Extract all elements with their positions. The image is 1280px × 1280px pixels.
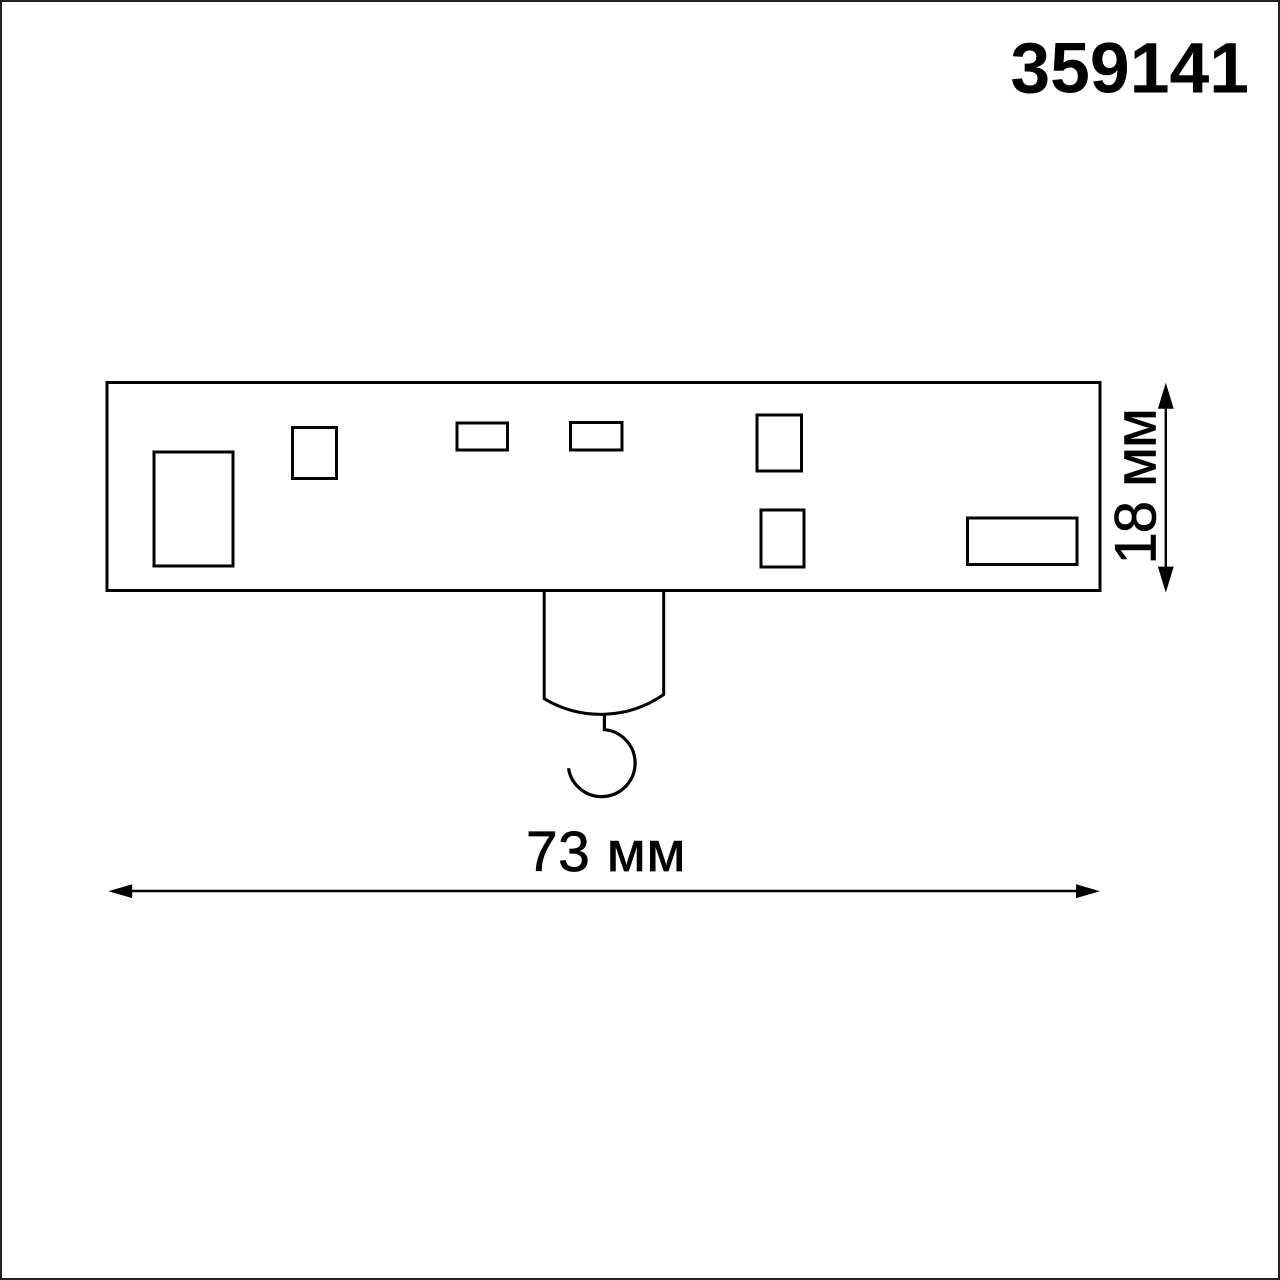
svg-text:18 мм: 18 мм (1104, 409, 1169, 564)
svg-text:73 мм: 73 мм (526, 820, 686, 884)
svg-text:359141: 359141 (1010, 29, 1249, 109)
